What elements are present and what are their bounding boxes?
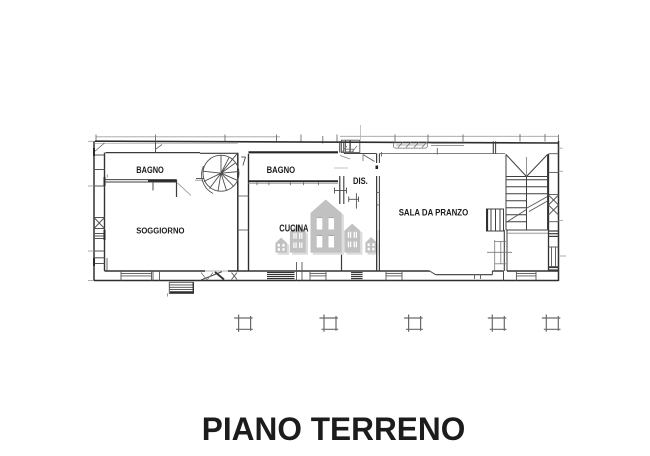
svg-text:PIANO TERRENO: PIANO TERRENO [202,411,466,447]
svg-text:SOGGIORNO: SOGGIORNO [136,226,185,236]
svg-text:BAGNO: BAGNO [267,165,296,175]
svg-text:DIS.: DIS. [353,176,368,187]
svg-text:BAGNO: BAGNO [136,165,164,175]
svg-text:SALA DA PRANZO: SALA DA PRANZO [399,207,469,218]
svg-text:CUCINA: CUCINA [279,224,308,235]
